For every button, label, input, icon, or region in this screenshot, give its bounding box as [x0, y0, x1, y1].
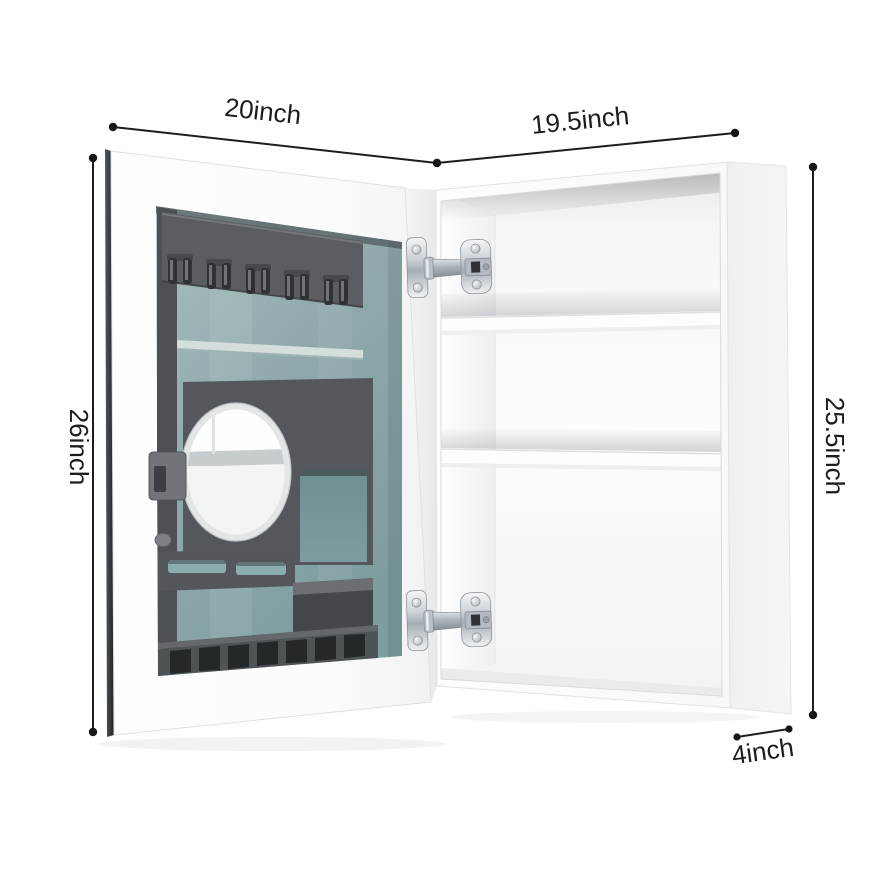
diagram-canvas: 20inch 19.5inch 26inch 25.5inch 4inch [0, 0, 895, 895]
toothbrush-slot [315, 636, 336, 661]
toothbrush-slot [199, 646, 220, 671]
cabinet-shelf-2 [441, 427, 722, 471]
toothbrush-slot [170, 649, 191, 674]
toothbrush-slot [257, 641, 278, 666]
mirror [181, 403, 291, 541]
dim-door-width-label: 20inch [223, 92, 302, 130]
toothbrush-slot [344, 634, 365, 658]
dim-body-width-label: 19.5inch [530, 100, 631, 140]
dim-body-height-label: 25.5inch [820, 397, 850, 495]
toothbrush-slot [286, 639, 307, 663]
dim-door-height-label: 26inch [64, 409, 94, 486]
toothbrush-slot [228, 644, 249, 669]
cabinet-shelf-1 [441, 288, 722, 335]
product-dimension-diagram: 20inch 19.5inch 26inch 25.5inch 4inch [0, 0, 895, 895]
cabinet-door [105, 149, 431, 737]
dim-body-height-line [809, 163, 817, 719]
cabinet-side-panel [727, 162, 791, 714]
latch-knob [155, 534, 171, 547]
strap-slots [158, 548, 295, 591]
